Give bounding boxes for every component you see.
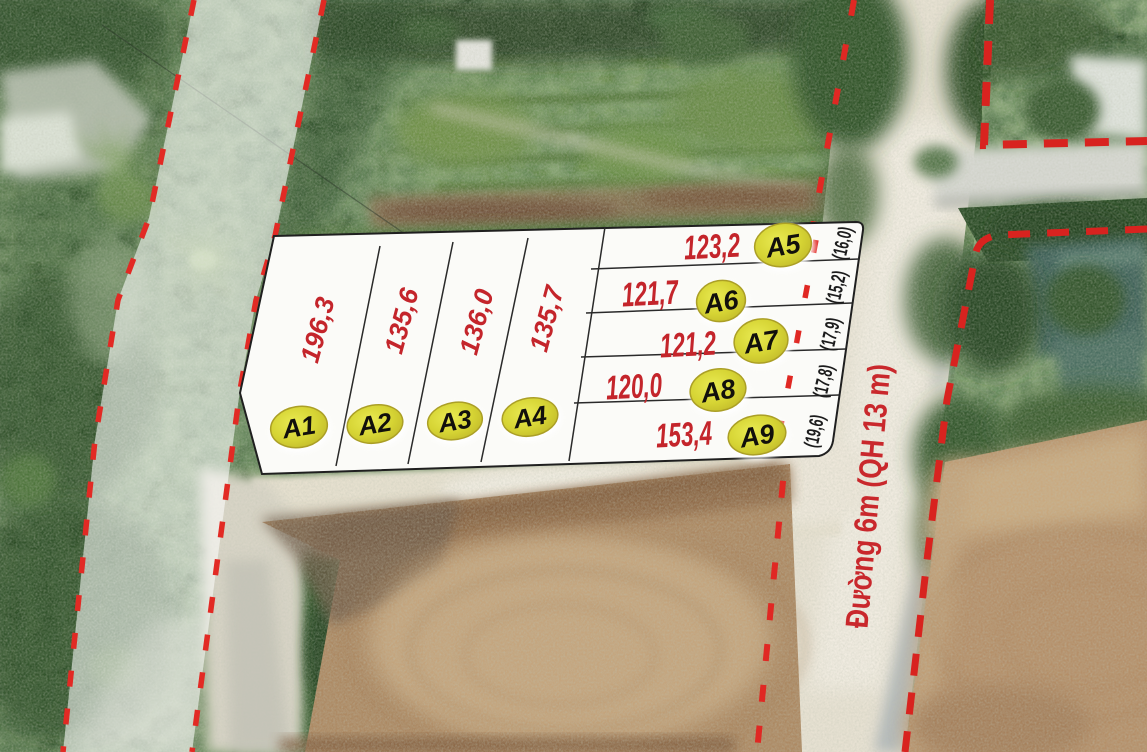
svg-text:153,4: 153,4 xyxy=(655,415,713,456)
svg-text:121,2: 121,2 xyxy=(659,325,717,366)
svg-text:A8: A8 xyxy=(698,373,738,408)
svg-text:A5: A5 xyxy=(763,228,804,263)
svg-text:123,2: 123,2 xyxy=(683,227,741,268)
svg-text:120,0: 120,0 xyxy=(605,367,663,408)
svg-text:121,7: 121,7 xyxy=(621,274,681,315)
svg-text:A4: A4 xyxy=(510,400,549,435)
svg-text:A1: A1 xyxy=(279,410,318,445)
svg-text:A7: A7 xyxy=(741,324,783,359)
svg-text:A2: A2 xyxy=(355,407,394,442)
svg-text:A3: A3 xyxy=(435,404,474,439)
svg-text:A9: A9 xyxy=(737,418,777,453)
svg-text:A6: A6 xyxy=(701,284,742,319)
